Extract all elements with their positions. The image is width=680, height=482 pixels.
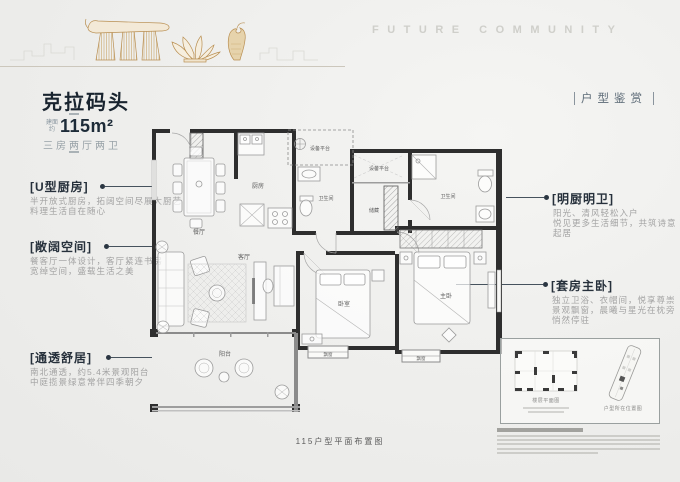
leader-dot [543, 282, 548, 287]
city-outline-right [260, 48, 318, 60]
area-value: 115m² [60, 116, 114, 137]
annotation-line: 南北通透，约5.4米景观阳台 [30, 367, 149, 377]
gold-underline [0, 66, 345, 67]
leader-line [506, 197, 544, 198]
keyplan-box: 楼层平面图 户型所在位置图 [500, 338, 660, 424]
annotation-line: 独立卫浴、衣帽间，悦享尊崇 [552, 295, 680, 305]
disclaimer-line [497, 452, 598, 454]
area-prefix-top: 建面 [46, 120, 58, 127]
annotation-line: 景观飘窗，晨曦与星光在枕旁悄然停驻 [552, 305, 680, 325]
leader-line [111, 357, 152, 358]
room-label-balcony: 阳台 [219, 350, 231, 358]
room-label-equip1: 设备平台 [310, 145, 330, 152]
room-label-living: 客厅 [238, 253, 250, 261]
room-label-storage: 储藏 [369, 207, 379, 214]
furniture [156, 133, 495, 399]
room-label-bay1: 飘窗 [324, 351, 333, 358]
room-label-bay2: 飘窗 [417, 355, 426, 362]
disclaimer-line [497, 439, 660, 441]
disclaimer-line [497, 448, 660, 450]
annotation-openspace-text: 餐客厅一体设计，客厅紧连书房 宽绰空间，盛载生活之美 [30, 256, 163, 276]
annotation-line: 阳光、清风轻松入户 [553, 208, 680, 218]
annotation-brightbath-label: [明厨明卫] [552, 190, 614, 207]
room-label-kitchen: 厨房 [252, 182, 264, 190]
keyplan-floor-diagram [513, 347, 579, 395]
wordmark: FUTURE COMMUNITY [372, 24, 624, 36]
annotation-line: 餐客厅一体设计，客厅紧连书房 [30, 256, 163, 266]
keyplan-fine-line [528, 411, 564, 413]
leader-dot [544, 195, 549, 200]
floor-plan: 餐厅 厨房 卫生间 卫生间 设备平台 设备平台 储藏 客厅 阳台 卧室 主卧 飘… [148, 120, 508, 422]
annotation-mastersuite-label: [套房主卧] [551, 277, 613, 294]
annotation-line: 宽绰空间，盛载生活之美 [30, 266, 163, 276]
annotation-mastersuite-text: 独立卫浴、衣帽间，悦享尊崇 景观飘窗，晨曦与星光在枕旁悄然停驻 [552, 295, 680, 325]
room-label-bath2: 卫生间 [440, 193, 455, 200]
singapore-skyline-illustration [8, 4, 338, 66]
leader-line [109, 246, 152, 247]
floorplan-poster: FUTURE COMMUNITY 户型鉴赏 克拉码头 建面 约 115m² 三房… [0, 0, 680, 482]
section-tag: 户型鉴赏 [574, 90, 654, 106]
window [497, 270, 501, 312]
disclaimer-fine-print [497, 428, 660, 456]
room-label-bath1: 卫生间 [318, 195, 333, 202]
divider-dash-bottom [69, 151, 79, 153]
tag-bar-right [653, 92, 654, 105]
annotation-airy-text: 南北通透，约5.4米景观阳台 中庭揽景绿意常伴四季朝夕 [30, 367, 149, 387]
room-label-equip2: 设备平台 [369, 165, 389, 172]
lotus-museum-icon [172, 36, 220, 62]
area-prefix: 建面 约 [46, 120, 58, 134]
annotation-airy-label: [通透舒居] [30, 349, 92, 366]
annotation-openspace-label: [敞阔空间] [30, 238, 92, 255]
plan-caption: 115户型平面布置图 [250, 436, 430, 447]
tag-text: 户型鉴赏 [581, 90, 647, 106]
layout-subtitle: 三房两厅两卫 [43, 137, 121, 152]
leader-line [105, 186, 152, 187]
keyplan-fine-line [523, 407, 569, 409]
keyplan-floor-label: 楼层平面图 [507, 397, 585, 404]
annotation-ukitchen-label: [U型厨房] [30, 178, 89, 195]
annotation-line: 悦见更多生活细节，共筑诗意起居 [553, 218, 680, 238]
disclaimer-heading [497, 428, 583, 432]
divider-dash-top [69, 113, 79, 115]
keyplan-building-diagram [599, 341, 651, 405]
annotation-brightbath-text: 阳光、清风轻松入户 悦见更多生活细节，共筑诗意起居 [553, 208, 680, 238]
merlion-icon [228, 23, 245, 60]
disclaimer-line [497, 443, 660, 445]
room-label-dining: 餐厅 [193, 228, 205, 236]
annotation-line: 中庭揽景绿意常伴四季朝夕 [30, 377, 149, 387]
room-label-master: 主卧 [440, 292, 452, 300]
marina-bay-sands-icon [85, 19, 169, 60]
page-title: 克拉码头 [42, 86, 130, 115]
room-label-bedroom: 卧室 [338, 300, 350, 308]
disclaimer-line [497, 435, 660, 437]
area-block: 建面 约 115m² [46, 116, 114, 137]
area-prefix-bottom: 约 [46, 127, 58, 134]
tag-bar-left [574, 92, 575, 105]
shaft [384, 186, 398, 230]
keyplan-building-label: 户型所在位置图 [589, 405, 657, 412]
city-outline-left [10, 44, 74, 60]
